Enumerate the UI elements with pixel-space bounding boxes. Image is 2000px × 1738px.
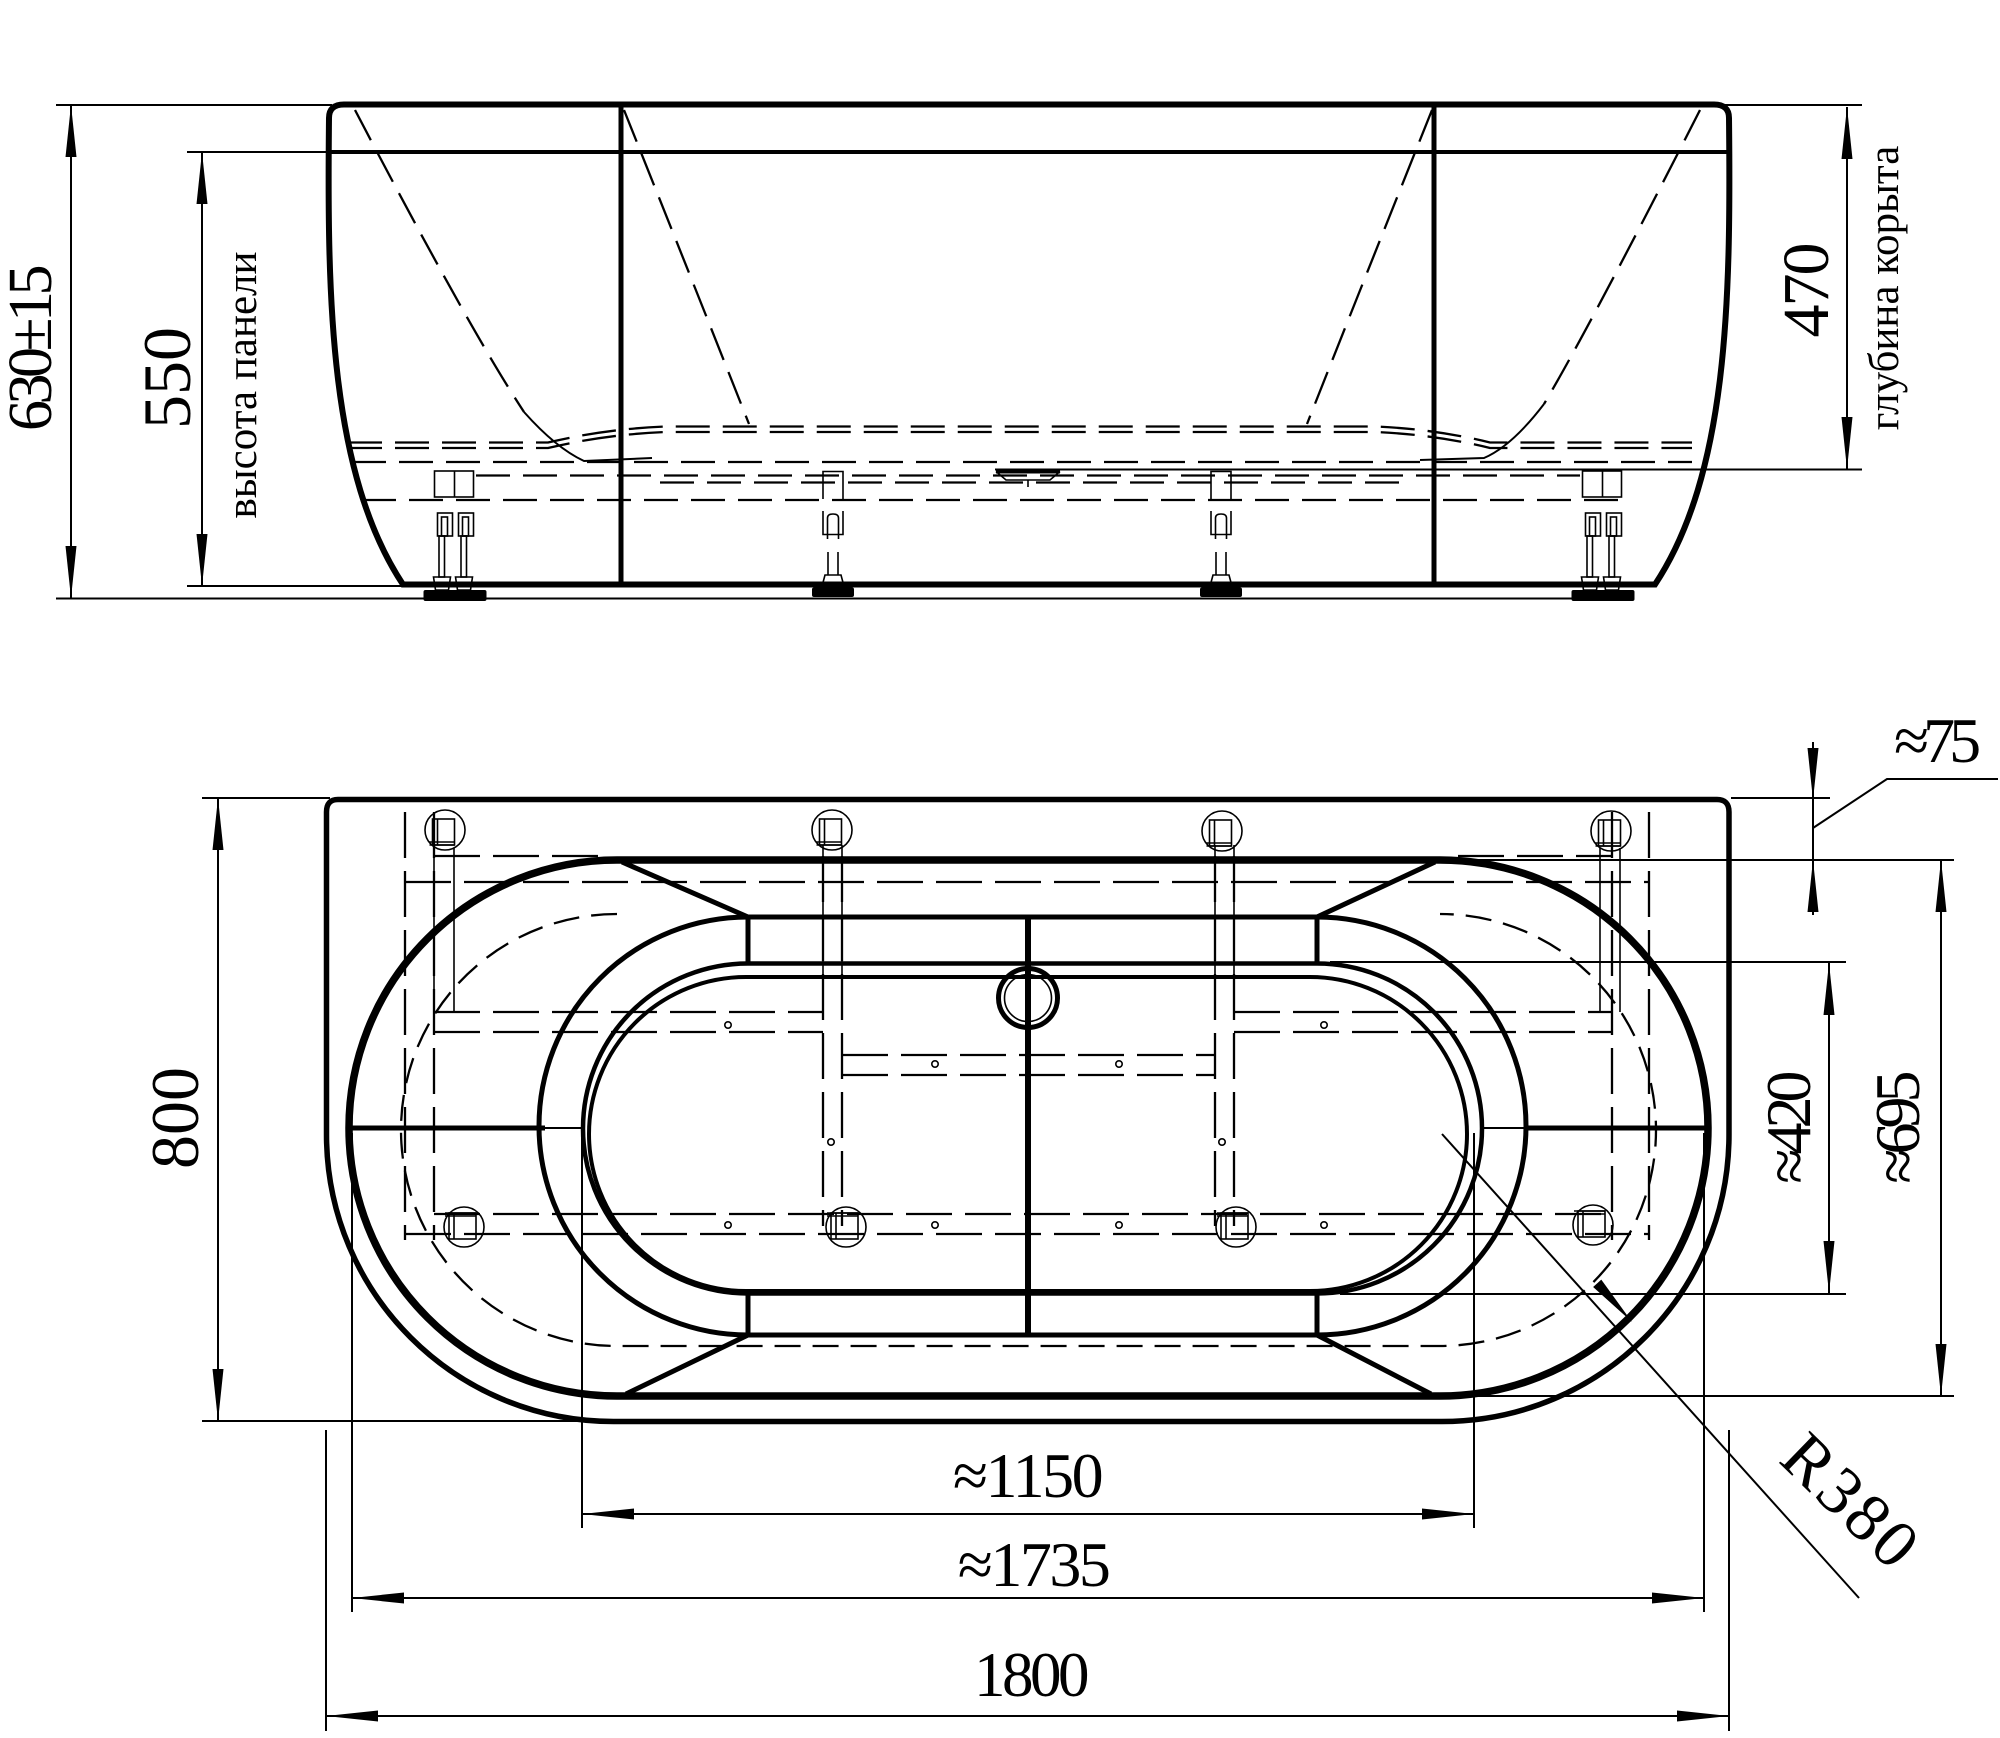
svg-text:≈420: ≈420 (1753, 1072, 1824, 1183)
svg-text:глубина корыта: глубина корыта (1861, 146, 1908, 431)
svg-text:1800: 1800 (974, 1640, 1088, 1710)
svg-text:470: 470 (1770, 245, 1843, 338)
svg-text:≈695: ≈695 (1862, 1072, 1933, 1183)
svg-text:высота панели: высота панели (219, 251, 266, 518)
svg-text:≈75: ≈75 (1894, 705, 1979, 776)
svg-text:≈1735: ≈1735 (958, 1529, 1109, 1600)
svg-text:≈1150: ≈1150 (953, 1440, 1102, 1511)
svg-text:800: 800 (137, 1067, 213, 1169)
svg-text:550: 550 (129, 327, 205, 429)
svg-text:630±15: 630±15 (0, 266, 65, 431)
